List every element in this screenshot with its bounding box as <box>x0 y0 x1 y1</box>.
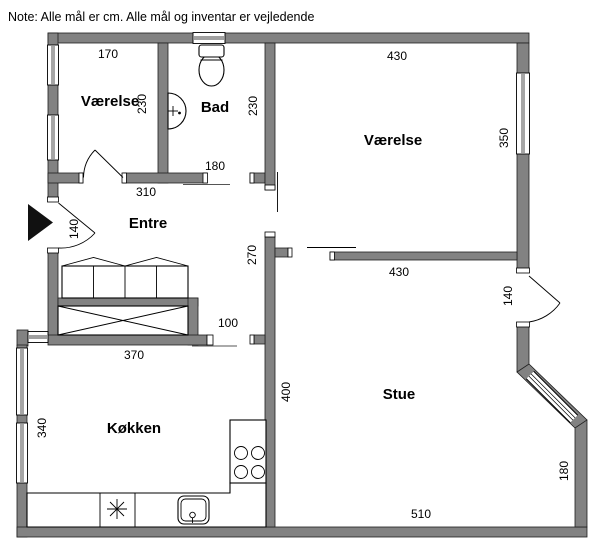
dim-bedroomleft-width: 170 <box>98 47 118 61</box>
wall-bedroom-bath <box>158 43 168 183</box>
room-label-bedroom-left: Værelse <box>81 93 139 110</box>
dim-kitchen-opening: 100 <box>218 316 238 330</box>
built-in-closet-icon <box>58 306 188 335</box>
note-text: Note: Alle mål er cm. Alle mål og invent… <box>8 10 314 24</box>
wall-top <box>48 33 529 43</box>
floorplan-page: Note: Alle mål er cm. Alle mål og invent… <box>0 0 600 547</box>
closet-wall-top <box>58 298 198 306</box>
dim-stue-south: 510 <box>411 507 431 521</box>
dim-stue-north: 430 <box>389 265 409 279</box>
dim-bedroomleft-depth: 230 <box>135 94 149 114</box>
room-label-hall: Entre <box>129 215 167 232</box>
dim-balcony-door: 140 <box>501 286 515 306</box>
dim-bedroomright-window-side: 350 <box>497 128 511 148</box>
balcony-door-opening <box>516 273 529 322</box>
wall-bath-bedroomright <box>265 43 275 190</box>
dim-entrance-door: 140 <box>67 219 81 239</box>
dim-bathroom-depth: 230 <box>246 96 260 116</box>
toilet-icon <box>199 45 224 86</box>
dim-hall-passage: 270 <box>245 245 259 265</box>
wall-hall-north-a <box>48 173 83 183</box>
room-label-kitchen: Køkken <box>107 420 161 437</box>
wall-bottom <box>17 527 587 537</box>
room-label-bathroom: Bad <box>201 99 229 116</box>
dim-bathroom-door: 180 <box>205 159 225 173</box>
room-label-stue: Stue <box>383 386 416 403</box>
dishwasher-icon <box>107 499 127 519</box>
dim-stue-west: 400 <box>279 382 293 402</box>
window-icon-kitchen-left-2 <box>17 423 28 483</box>
window-icon-bedroomleft-2 <box>48 115 59 160</box>
kitchen-sink-icon <box>178 496 209 524</box>
fixtures <box>27 45 266 527</box>
wardrobe-icon <box>62 258 188 299</box>
wall-kitchen-corner <box>17 330 28 346</box>
dim-bedroomright-width: 430 <box>387 49 407 63</box>
dim-kitchen-width: 370 <box>124 348 144 362</box>
window-icon-bath-top <box>193 33 225 44</box>
window-icon-bedroomleft-1 <box>48 45 59 85</box>
floorplan-drawing: Note: Alle mål er cm. Alle mål og invent… <box>0 0 600 547</box>
window-icon-stue-diagonal <box>529 374 575 420</box>
stove-icon <box>230 420 266 483</box>
wall-hall-north-b <box>123 173 207 183</box>
balcony-door-swing-icon <box>529 276 560 322</box>
wall-right-lower <box>575 420 587 527</box>
window-icon-bedroomright <box>517 73 530 154</box>
washbasin-icon <box>168 93 186 129</box>
dim-stue-east: 180 <box>557 461 571 481</box>
kitchen-worktop <box>27 483 266 527</box>
dim-kitchen-depth: 340 <box>35 418 49 438</box>
wall-stub-stue-door <box>275 248 288 257</box>
window-icon-kitchen-top <box>28 332 48 343</box>
window-icon-kitchen-left-1 <box>17 348 28 415</box>
wall-bedroomright-stue <box>330 252 517 260</box>
room-label-bedroom-right: Værelse <box>364 132 422 149</box>
closet-wall-bottom <box>48 335 207 345</box>
bedroomleft-door-swing-icon <box>84 150 124 178</box>
dim-hall-width: 310 <box>136 185 156 199</box>
wall-stub-kitchen-opening <box>254 335 265 344</box>
